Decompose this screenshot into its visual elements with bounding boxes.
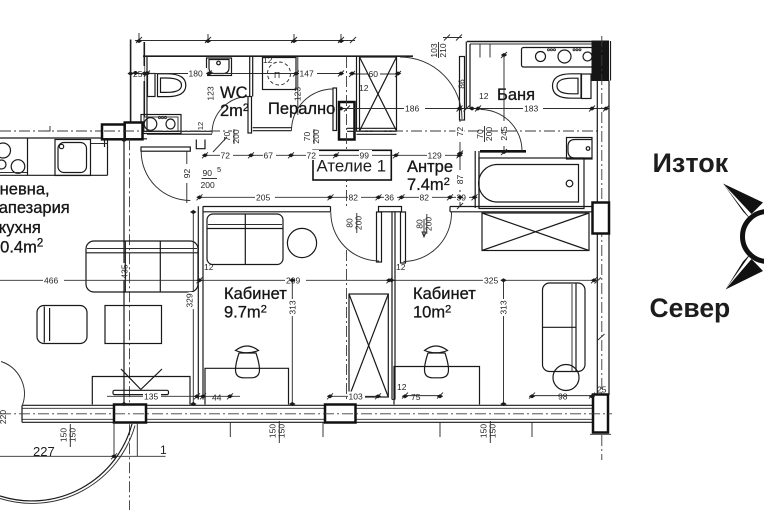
svg-text:180: 180 xyxy=(189,69,203,79)
svg-text:П: П xyxy=(274,70,280,80)
svg-text:1: 1 xyxy=(160,443,167,457)
svg-text:435: 435 xyxy=(120,264,130,278)
svg-text:150: 150 xyxy=(488,424,498,438)
svg-text:329: 329 xyxy=(185,293,195,307)
svg-text:186: 186 xyxy=(405,104,419,114)
svg-text:99: 99 xyxy=(360,151,370,161)
svg-text:92: 92 xyxy=(182,169,192,179)
svg-text:72: 72 xyxy=(455,127,465,137)
svg-text:Ателие 1: Ателие 1 xyxy=(317,157,387,176)
svg-text:325: 325 xyxy=(484,276,498,286)
svg-text:150: 150 xyxy=(277,424,287,438)
svg-text:200: 200 xyxy=(231,129,241,143)
svg-text:103: 103 xyxy=(349,392,363,402)
svg-text:123: 123 xyxy=(293,87,303,101)
svg-text:147: 147 xyxy=(300,69,314,79)
svg-text:Изток: Изток xyxy=(653,148,729,178)
svg-text:72: 72 xyxy=(307,151,317,161)
svg-text:75: 75 xyxy=(411,392,421,402)
svg-text:44: 44 xyxy=(212,393,222,403)
svg-text:72: 72 xyxy=(221,151,231,161)
svg-text:12: 12 xyxy=(479,91,489,101)
svg-text:Баня: Баня xyxy=(497,86,535,104)
svg-text:98: 98 xyxy=(558,392,568,402)
svg-text:WC: WC xyxy=(220,84,248,102)
svg-text:200: 200 xyxy=(354,216,364,230)
svg-text:82: 82 xyxy=(420,193,430,203)
svg-text:200: 200 xyxy=(311,129,321,143)
svg-text:Антре: Антре xyxy=(407,158,453,176)
svg-text:245: 245 xyxy=(499,126,509,140)
svg-text:200: 200 xyxy=(484,127,494,141)
svg-text:200: 200 xyxy=(201,180,215,190)
svg-text:313: 313 xyxy=(288,300,298,314)
svg-text:20.4m2: 20.4m2 xyxy=(0,238,43,257)
svg-text:200: 200 xyxy=(424,217,434,231)
svg-text:90: 90 xyxy=(203,168,213,178)
svg-text:25: 25 xyxy=(597,385,607,395)
svg-text:183: 183 xyxy=(524,104,538,114)
svg-text:123: 123 xyxy=(206,86,216,100)
svg-text:7.4m2: 7.4m2 xyxy=(407,176,450,194)
svg-text:86: 86 xyxy=(457,79,467,89)
svg-text:5: 5 xyxy=(217,165,221,174)
svg-text:313: 313 xyxy=(499,300,509,314)
svg-text:150: 150 xyxy=(68,428,78,442)
svg-text:67: 67 xyxy=(264,151,274,161)
svg-text:205: 205 xyxy=(256,193,270,203)
svg-text:135: 135 xyxy=(144,392,158,402)
svg-text:Север: Север xyxy=(650,293,731,323)
svg-text:Перално: Перално xyxy=(268,100,335,118)
svg-text:12: 12 xyxy=(196,122,205,130)
svg-text:Дневна,: Дневна, xyxy=(0,181,50,199)
svg-text:12: 12 xyxy=(359,83,369,93)
svg-text:466: 466 xyxy=(44,276,58,286)
svg-text:Кабинет: Кабинет xyxy=(413,285,476,303)
svg-text:210: 210 xyxy=(438,43,448,57)
svg-text:трапезария: трапезария xyxy=(0,199,70,217)
svg-text:220: 220 xyxy=(0,410,8,424)
svg-text:87: 87 xyxy=(455,175,465,185)
svg-text:Кабинет: Кабинет xyxy=(224,285,287,303)
svg-text:12: 12 xyxy=(397,382,407,392)
svg-text:36: 36 xyxy=(385,193,395,203)
svg-text:12: 12 xyxy=(263,55,273,65)
svg-text:82: 82 xyxy=(349,193,359,203)
svg-text:9.7m2: 9.7m2 xyxy=(224,304,267,322)
svg-text:и кухня: и кухня xyxy=(0,219,41,237)
